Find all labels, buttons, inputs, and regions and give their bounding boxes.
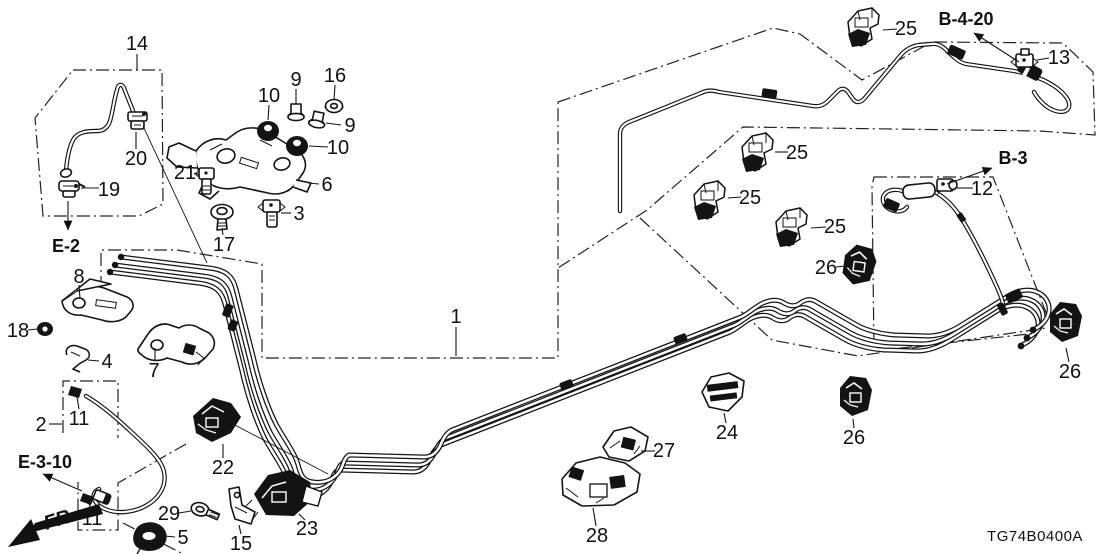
callout-27: 27: [653, 440, 675, 462]
pipe-end-fitting: [1024, 335, 1031, 342]
clamp-24: [702, 373, 744, 411]
leader-line: [309, 146, 328, 147]
callout-18: 18: [7, 320, 29, 342]
pipe-end-fitting: [112, 262, 118, 268]
callout-29: 29: [158, 503, 180, 525]
callout-26: 26: [815, 257, 837, 279]
clip-25-top: [848, 8, 879, 47]
callout-20: 20: [125, 148, 147, 170]
leader-line: [88, 360, 99, 361]
callout-13: 13: [1048, 47, 1070, 69]
nut-18: [37, 322, 53, 336]
callout-10: 10: [258, 85, 280, 107]
callout-25: 25: [895, 18, 917, 40]
ref-arrow: [974, 33, 1019, 62]
callout-5: 5: [177, 527, 188, 549]
bracket-7-assembly: [66, 324, 214, 372]
bracket-8-assembly: [37, 279, 133, 336]
bolt-29: [190, 501, 221, 521]
callout-1: 1: [450, 306, 461, 328]
callout-9: 9: [344, 115, 355, 137]
ref-arrow: [43, 474, 82, 491]
clamp-27: [603, 427, 648, 461]
clamp-20: [128, 112, 147, 129]
callout-8: 8: [73, 266, 84, 288]
fuel-pipe-assembly: [107, 254, 1049, 498]
callout-24: 24: [716, 422, 738, 444]
callout-4: 4: [101, 351, 112, 373]
pipe-end-fitting: [118, 254, 124, 260]
callout-9: 9: [290, 69, 301, 91]
clip-3: [258, 200, 285, 227]
pipe-b420-assembly: [620, 44, 1069, 211]
hose-b3: [933, 191, 1004, 313]
cap-9-left: [288, 104, 304, 121]
clip-25-left: [694, 181, 725, 220]
pipe-end-fitting: [107, 269, 113, 275]
parts-diagram-canvas: FR. TG74B0400A 1491610910202119631781847…: [0, 0, 1108, 554]
clip-25-lower: [776, 208, 807, 247]
clip-21: [195, 168, 214, 194]
grommet-5: [133, 522, 166, 554]
clip-13: [1011, 49, 1038, 67]
leader-line: [593, 508, 596, 526]
hose-2-assembly: [68, 386, 165, 512]
pipe-end-fitting: [1018, 343, 1025, 350]
clamp-19: [59, 181, 85, 197]
callout-15: 15: [230, 533, 252, 554]
leader-line: [268, 105, 269, 120]
hose-b3-sleeve: [902, 182, 935, 199]
callout-7: 7: [148, 360, 159, 382]
callout-11: 11: [69, 408, 90, 430]
callout-26: 26: [1059, 361, 1081, 383]
callout-25: 25: [824, 216, 846, 238]
leader-line: [28, 329, 37, 330]
nut-16: [325, 100, 343, 113]
leader-line: [326, 123, 341, 125]
grommet-10-right: [286, 136, 308, 156]
fuel-pipe-main: [121, 257, 1049, 482]
ref-E-2: E-2: [52, 236, 80, 256]
callout-10: 10: [327, 137, 349, 159]
bracket-15: [229, 487, 255, 524]
diagram-code: TG74B0400A: [987, 528, 1083, 545]
bolt-17: [211, 205, 233, 231]
leader-line: [1066, 348, 1069, 362]
bracket-7: [138, 324, 215, 364]
callout-21: 21: [174, 162, 196, 184]
callout-25: 25: [739, 187, 761, 209]
callout-25: 25: [786, 142, 808, 164]
callout-26: 26: [843, 427, 865, 449]
ref-B-4-20: B-4-20: [938, 9, 993, 29]
callout-12: 12: [971, 178, 993, 200]
leader-line: [334, 85, 335, 100]
callout-23: 23: [296, 518, 318, 540]
fr-label: FR.: [41, 504, 78, 534]
ref-E-3-10: E-3-10: [18, 452, 72, 472]
callout-16: 16: [324, 65, 346, 87]
callout-14: 14: [126, 33, 148, 55]
callout-3: 3: [293, 203, 304, 225]
callout-11: 11: [82, 508, 103, 530]
clip-26-right: [1050, 302, 1082, 342]
pipe-end-fitting: [1030, 327, 1037, 334]
callout-22: 22: [212, 457, 234, 479]
clip-4: [66, 346, 89, 372]
callout-17: 17: [213, 234, 235, 256]
cap-9-right: [308, 111, 327, 130]
clip-25-upper: [742, 133, 773, 172]
holder-28: [562, 457, 640, 506]
clip-26-mid: [840, 376, 872, 416]
leader-line: [179, 511, 191, 513]
callout-2: 2: [35, 414, 46, 436]
grommet-10-left: [257, 121, 279, 141]
clip-11-upper: [68, 386, 82, 398]
protector-23: [246, 470, 322, 520]
ref-B-3: B-3: [998, 148, 1027, 168]
callout-28: 28: [586, 525, 608, 547]
hose-14-end-cap: [60, 168, 73, 179]
parts-diagram-page: FR. TG74B0400A 1491610910202119631781847…: [0, 0, 1108, 554]
callout-6: 6: [321, 174, 332, 196]
callout-19: 19: [98, 179, 120, 201]
